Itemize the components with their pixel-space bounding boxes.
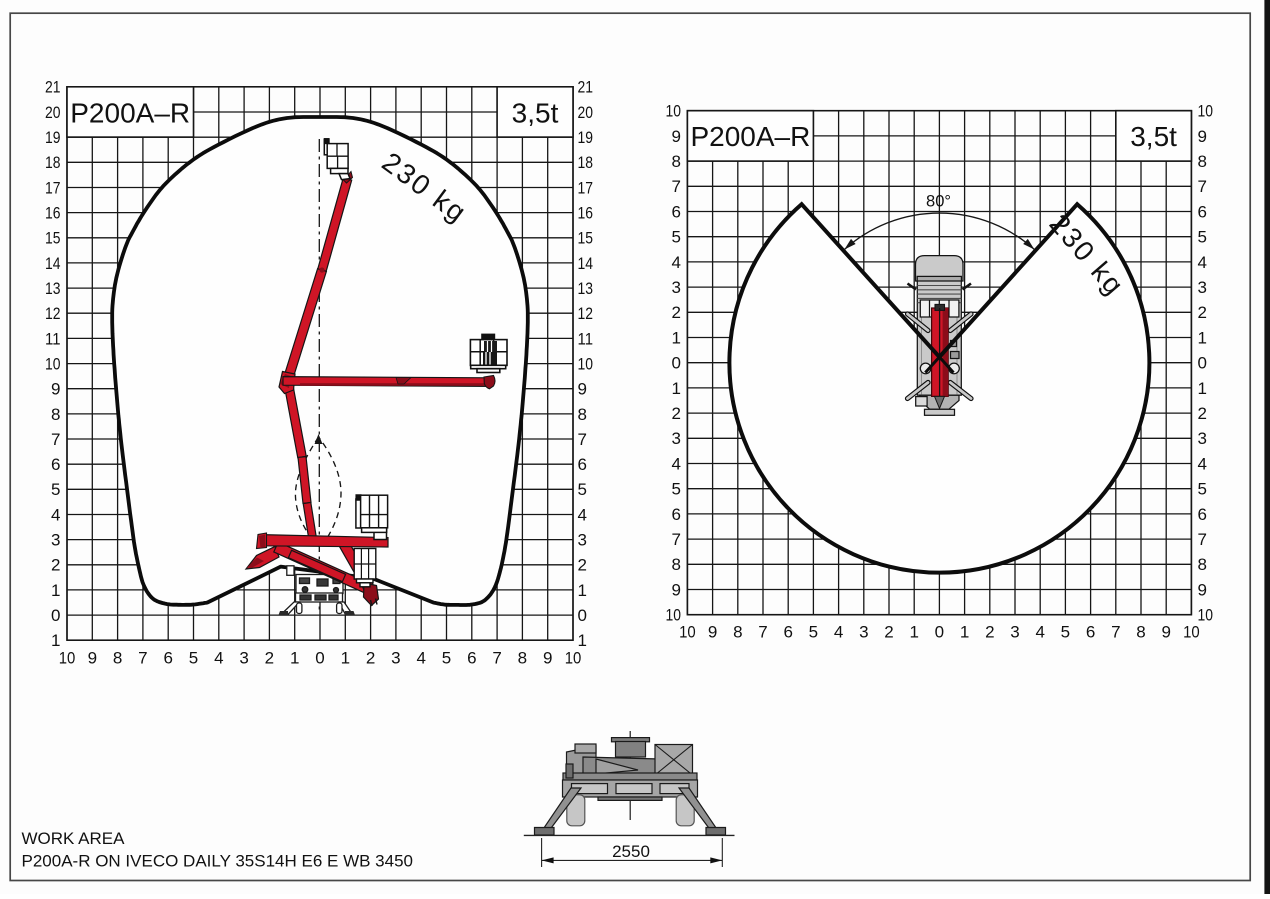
svg-text:8: 8 (733, 623, 742, 642)
svg-text:19: 19 (45, 128, 61, 147)
svg-text:17: 17 (578, 178, 594, 197)
svg-text:9: 9 (88, 648, 97, 667)
svg-text:3: 3 (391, 648, 400, 667)
svg-text:6: 6 (1198, 202, 1207, 221)
svg-text:12: 12 (45, 304, 61, 323)
svg-text:1: 1 (290, 648, 299, 667)
svg-text:0: 0 (51, 606, 60, 625)
svg-text:P200A-R ON IVECO DAILY 35S14H: P200A-R ON IVECO DAILY 35S14H E6 E WB 34… (22, 852, 414, 871)
svg-text:10: 10 (1198, 606, 1214, 625)
svg-text:13: 13 (45, 279, 61, 298)
svg-text:8: 8 (113, 648, 122, 667)
svg-text:18: 18 (578, 153, 594, 172)
svg-text:5: 5 (1198, 480, 1207, 499)
svg-text:3: 3 (1198, 278, 1207, 297)
svg-text:4: 4 (214, 648, 223, 667)
svg-text:4: 4 (416, 648, 425, 667)
svg-text:1: 1 (51, 581, 60, 600)
svg-text:6: 6 (1086, 623, 1095, 642)
svg-text:7: 7 (492, 648, 501, 667)
svg-text:5: 5 (578, 480, 587, 499)
svg-text:15: 15 (45, 229, 61, 248)
svg-text:0: 0 (578, 606, 587, 625)
svg-text:10: 10 (679, 623, 696, 642)
svg-text:10: 10 (1183, 623, 1200, 642)
svg-text:4: 4 (834, 623, 843, 642)
svg-text:7: 7 (51, 430, 60, 449)
svg-text:1: 1 (341, 648, 350, 667)
svg-text:9: 9 (672, 580, 681, 599)
svg-text:7: 7 (138, 648, 147, 667)
svg-text:WORK AREA: WORK AREA (22, 829, 126, 848)
svg-text:12: 12 (578, 304, 594, 323)
svg-text:2: 2 (884, 623, 893, 642)
svg-text:1: 1 (578, 581, 587, 600)
svg-text:1: 1 (672, 328, 681, 347)
svg-text:2: 2 (51, 556, 60, 575)
svg-text:9: 9 (1161, 623, 1170, 642)
svg-text:9: 9 (543, 648, 552, 667)
svg-text:0: 0 (935, 623, 944, 642)
svg-text:1: 1 (672, 379, 681, 398)
svg-text:6: 6 (672, 202, 681, 221)
svg-text:9: 9 (51, 380, 60, 399)
svg-text:5: 5 (672, 228, 681, 247)
svg-text:5: 5 (672, 480, 681, 499)
svg-text:20: 20 (45, 103, 61, 122)
svg-text:80°: 80° (926, 193, 951, 211)
svg-text:9: 9 (578, 380, 587, 399)
svg-text:21: 21 (578, 78, 594, 97)
svg-text:14: 14 (45, 254, 61, 273)
svg-text:4: 4 (1035, 623, 1044, 642)
svg-text:2: 2 (366, 648, 375, 667)
svg-text:4: 4 (51, 505, 60, 524)
svg-text:8: 8 (672, 555, 681, 574)
svg-text:3: 3 (1010, 623, 1019, 642)
svg-text:1: 1 (1198, 328, 1207, 347)
svg-text:10: 10 (578, 355, 594, 374)
svg-text:7: 7 (1198, 177, 1207, 196)
svg-text:2: 2 (265, 648, 274, 667)
svg-text:3: 3 (672, 429, 681, 448)
svg-text:3: 3 (859, 623, 868, 642)
svg-text:1: 1 (1198, 379, 1207, 398)
svg-text:4: 4 (1198, 253, 1207, 272)
svg-text:7: 7 (1111, 623, 1120, 642)
svg-text:9: 9 (1198, 127, 1207, 146)
svg-text:2550: 2550 (612, 842, 650, 861)
svg-text:5: 5 (189, 648, 198, 667)
svg-text:6: 6 (578, 455, 587, 474)
svg-text:10: 10 (59, 648, 76, 667)
svg-text:4: 4 (578, 505, 587, 524)
svg-text:8: 8 (51, 405, 60, 424)
svg-text:7: 7 (1198, 530, 1207, 549)
svg-text:1: 1 (909, 623, 918, 642)
svg-text:19: 19 (578, 128, 594, 147)
svg-text:3,5t: 3,5t (1130, 121, 1177, 152)
svg-text:0: 0 (672, 354, 681, 373)
svg-text:3: 3 (672, 278, 681, 297)
svg-text:5: 5 (1061, 623, 1070, 642)
svg-text:4: 4 (672, 454, 681, 473)
svg-text:2: 2 (672, 404, 681, 423)
svg-text:10: 10 (1198, 102, 1214, 121)
svg-text:0: 0 (315, 648, 324, 667)
svg-text:8: 8 (1198, 555, 1207, 574)
svg-text:2: 2 (672, 303, 681, 322)
svg-text:6: 6 (51, 455, 60, 474)
svg-text:5: 5 (442, 648, 451, 667)
svg-text:21: 21 (45, 78, 61, 97)
svg-text:8: 8 (1198, 152, 1207, 171)
svg-text:17: 17 (45, 178, 61, 197)
svg-text:6: 6 (672, 505, 681, 524)
svg-text:15: 15 (578, 229, 594, 248)
svg-text:9: 9 (1198, 580, 1207, 599)
svg-text:8: 8 (578, 405, 587, 424)
svg-text:6: 6 (163, 648, 172, 667)
svg-text:10: 10 (45, 355, 61, 374)
svg-text:5: 5 (1198, 228, 1207, 247)
svg-text:P200A–R: P200A–R (690, 121, 810, 152)
svg-text:2: 2 (1198, 303, 1207, 322)
svg-text:2: 2 (1198, 404, 1207, 423)
svg-text:10: 10 (666, 102, 682, 121)
svg-text:4: 4 (1198, 454, 1207, 473)
svg-text:P200A–R: P200A–R (70, 97, 190, 128)
svg-text:4: 4 (672, 253, 681, 272)
svg-text:5: 5 (809, 623, 818, 642)
svg-text:20: 20 (578, 103, 594, 122)
svg-text:3,5t: 3,5t (512, 97, 559, 128)
svg-text:5: 5 (51, 480, 60, 499)
svg-text:11: 11 (45, 329, 61, 348)
svg-text:7: 7 (758, 623, 767, 642)
svg-text:11: 11 (578, 329, 594, 348)
svg-text:2: 2 (985, 623, 994, 642)
svg-text:3: 3 (1198, 429, 1207, 448)
svg-text:6: 6 (1198, 505, 1207, 524)
svg-text:3: 3 (51, 531, 60, 550)
svg-text:3: 3 (578, 531, 587, 550)
svg-text:3: 3 (239, 648, 248, 667)
svg-text:6: 6 (783, 623, 792, 642)
svg-text:14: 14 (578, 254, 594, 273)
svg-text:2: 2 (578, 556, 587, 575)
svg-text:16: 16 (45, 204, 61, 223)
svg-text:18: 18 (45, 153, 61, 172)
svg-text:9: 9 (708, 623, 717, 642)
svg-text:13: 13 (578, 279, 594, 298)
svg-text:0: 0 (1198, 354, 1207, 373)
svg-text:9: 9 (672, 127, 681, 146)
svg-text:7: 7 (672, 530, 681, 549)
svg-text:10: 10 (565, 648, 582, 667)
svg-text:8: 8 (672, 152, 681, 171)
svg-text:8: 8 (518, 648, 527, 667)
svg-text:7: 7 (578, 430, 587, 449)
svg-text:8: 8 (1136, 623, 1145, 642)
svg-text:7: 7 (672, 177, 681, 196)
svg-text:16: 16 (578, 204, 594, 223)
svg-text:6: 6 (467, 648, 476, 667)
svg-text:1: 1 (960, 623, 969, 642)
